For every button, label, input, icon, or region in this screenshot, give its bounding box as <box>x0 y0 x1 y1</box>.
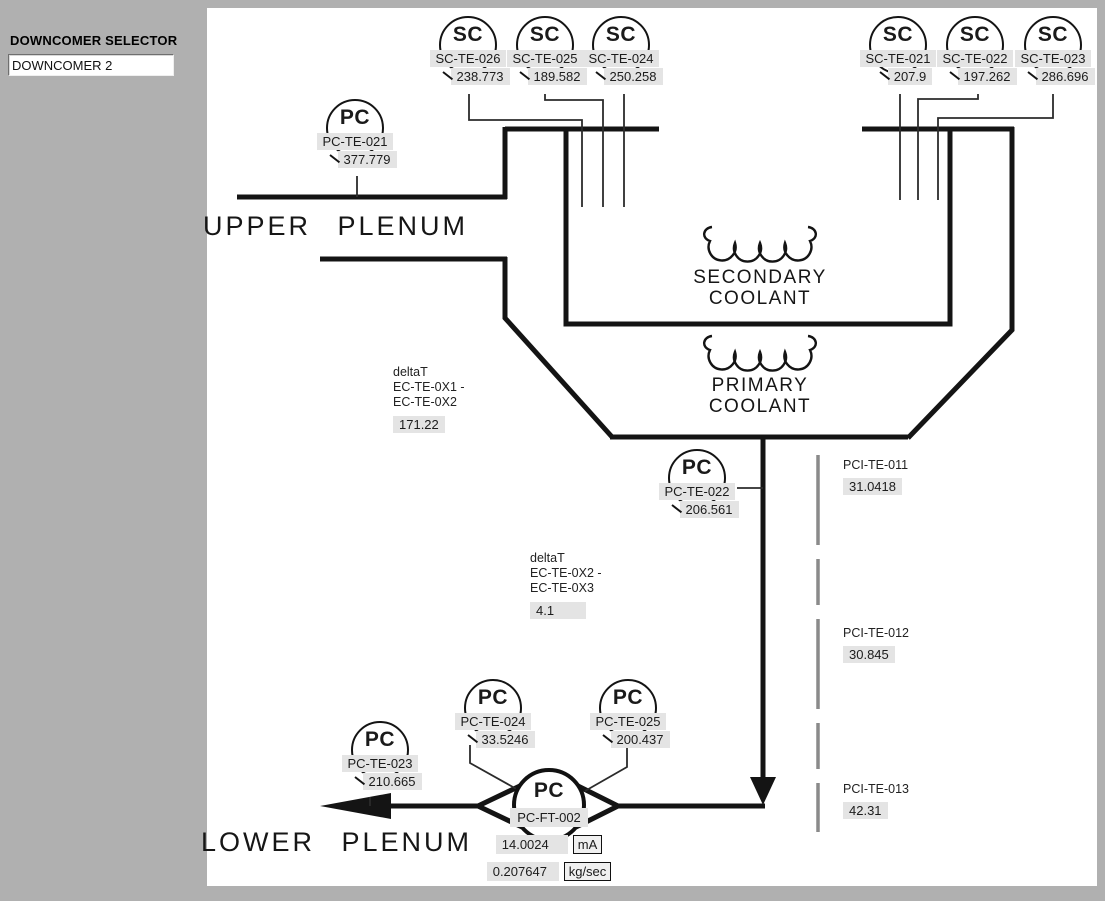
diagram-canvas: UPPER PLENUM LOWER PLENUM SECONDARY COOL… <box>207 8 1097 886</box>
instrument-tag: PC-TE-023 <box>342 755 417 772</box>
instrument-pc-te-022: PC PC-TE-022 206.561 <box>652 449 742 518</box>
instrument-sc-te-023: SC SC-TE-023 286.696 <box>1008 16 1098 85</box>
downcomer-selector-input[interactable] <box>8 54 174 76</box>
delta-t-label: EC-TE-0X2 <box>393 395 465 410</box>
primary-coolant-label: PRIMARY COOLANT <box>675 375 845 417</box>
instrument-tag: PC-TE-022 <box>659 483 734 500</box>
instrument-value: 33.5246 <box>476 731 535 748</box>
pci-tag: PCI-TE-012 <box>843 626 909 640</box>
secondary-coolant-coil-icon <box>704 227 816 262</box>
secondary-coolant-label: SECONDARY COOLANT <box>675 267 845 309</box>
lower-plenum-label: LOWER PLENUM <box>201 827 472 858</box>
flow-meter-pc-ft-002: PC PC-FT-002 14.0024 mA 0.207647 kg/sec <box>509 768 589 881</box>
instrument-pc-te-021: PC PC-TE-021 377.779 <box>310 99 400 168</box>
pci-tag: PCI-TE-013 <box>843 782 909 796</box>
delta-t-ec-te-0x2-0x3: deltaT EC-TE-0X2 - EC-TE-0X3 4.1 <box>530 551 602 619</box>
instrument-pc-te-025: PC PC-TE-025 200.437 <box>583 679 673 748</box>
vessel-left-lower <box>505 257 613 438</box>
instrument-value: 207.9 <box>888 68 933 85</box>
instrument-pc-te-023: PC PC-TE-023 210.665 <box>335 721 425 790</box>
lead-pc-te-025 <box>585 745 627 791</box>
pci-te-013-block: PCI-TE-013 42.31 <box>843 782 909 819</box>
instrument-sc-te-022: SC SC-TE-022 197.262 <box>930 16 1020 85</box>
pci-value: 42.31 <box>843 802 888 819</box>
instrument-tag: SC-TE-021 <box>860 50 935 67</box>
instrument-tag: PC-FT-002 <box>510 808 588 827</box>
pci-tag: PCI-TE-011 <box>843 458 908 472</box>
instrument-tag: SC-TE-026 <box>430 50 505 67</box>
instrument-value: 200.437 <box>611 731 670 748</box>
flow-meter-flow-unit: kg/sec <box>564 862 612 881</box>
upper-plenum-label: UPPER PLENUM <box>203 211 468 242</box>
instrument-tag: PC-TE-021 <box>317 133 392 150</box>
delta-t-label: deltaT <box>393 365 465 380</box>
app-window: { "sidebar": { "selector_label": "DOWNCO… <box>0 0 1105 901</box>
delta-t-label: EC-TE-0X1 - <box>393 380 465 395</box>
instrument-tag: PC-TE-025 <box>590 713 665 730</box>
lead-sc-te-023 <box>938 94 1053 200</box>
delta-t-ec-te-0x1-0x2: deltaT EC-TE-0X1 - EC-TE-0X2 171.22 <box>393 365 465 433</box>
instrument-value: 250.258 <box>604 68 663 85</box>
flow-arrow-left <box>320 793 391 819</box>
primary-coolant-coil-icon <box>704 336 816 371</box>
downcomer-selector-label: DOWNCOMER SELECTOR <box>10 33 177 48</box>
delta-t-label: EC-TE-0X3 <box>530 581 602 596</box>
pci-value: 31.0418 <box>843 478 902 495</box>
delta-t-label: deltaT <box>530 551 602 566</box>
instrument-tag: SC-TE-024 <box>583 50 658 67</box>
instrument-value: 286.696 <box>1036 68 1095 85</box>
pci-te-012-block: PCI-TE-012 30.845 <box>843 626 909 663</box>
pci-te-011-block: PCI-TE-011 31.0418 <box>843 458 908 495</box>
delta-t-label: EC-TE-0X2 - <box>530 566 602 581</box>
flow-meter-current-value: 14.0024 <box>496 835 568 854</box>
instrument-tag: SC-TE-025 <box>507 50 582 67</box>
delta-t-value: 171.22 <box>393 416 445 433</box>
instrument-pc-te-024: PC PC-TE-024 33.5246 <box>448 679 538 748</box>
lead-sc-te-025 <box>545 94 603 207</box>
flow-arrow-down <box>750 777 776 805</box>
pci-value: 30.845 <box>843 646 895 663</box>
flow-meter-flow-value: 0.207647 <box>487 862 559 881</box>
instrument-tag: PC-TE-024 <box>455 713 530 730</box>
delta-t-value: 4.1 <box>530 602 586 619</box>
instrument-value: 377.779 <box>338 151 397 168</box>
instrument-sc-te-024: SC SC-TE-024 250.258 <box>576 16 666 85</box>
instrument-bubble: PC <box>512 768 586 842</box>
instrument-tag: SC-TE-023 <box>1015 50 1090 67</box>
instrument-value: 206.561 <box>680 501 739 518</box>
instrument-tag: SC-TE-022 <box>937 50 1012 67</box>
flow-meter-current-unit: mA <box>573 835 603 854</box>
instrument-value: 210.665 <box>363 773 422 790</box>
